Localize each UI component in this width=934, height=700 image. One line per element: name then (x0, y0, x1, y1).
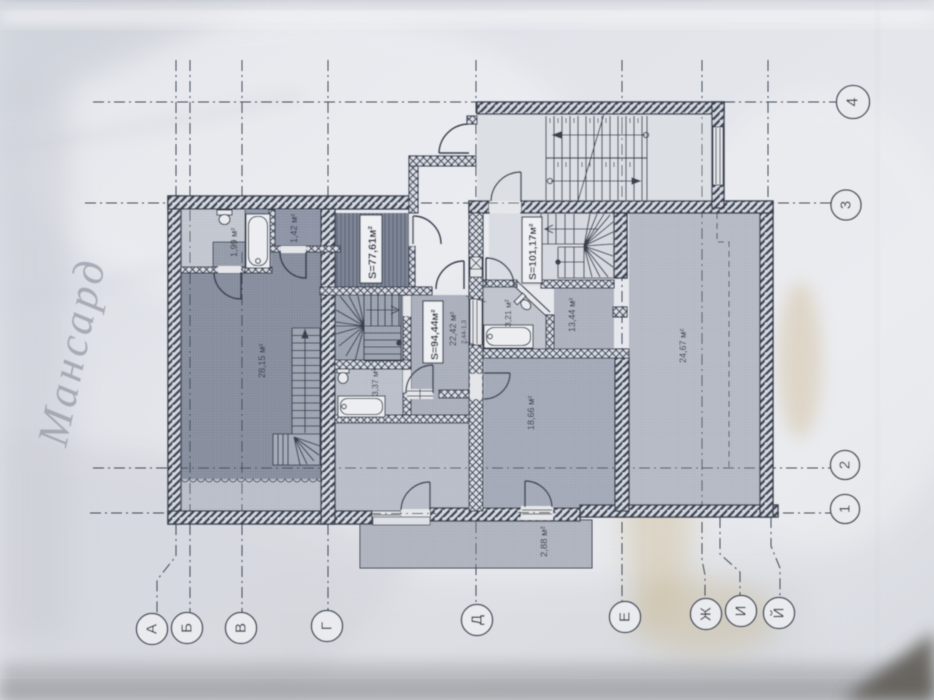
svg-text:24,67 м²: 24,67 м² (678, 329, 688, 363)
svg-text:2: 2 (837, 461, 854, 469)
svg-text:Й: Й (770, 608, 788, 619)
svg-text:2,88 м²: 2,88 м² (539, 526, 550, 557)
svg-text:S=77,61м²: S=77,61м² (367, 226, 379, 279)
svg-text:2,44-1,3: 2,44-1,3 (461, 320, 468, 344)
svg-text:S=94,44м²: S=94,44м² (429, 309, 441, 360)
svg-text:4: 4 (845, 97, 862, 106)
svg-text:28,15 м²: 28,15 м² (257, 344, 267, 378)
svg-text:Д: Д (469, 615, 486, 625)
svg-text:Б: Б (179, 623, 196, 633)
svg-text:3,37 м²: 3,37 м² (370, 368, 380, 396)
svg-text:3: 3 (838, 201, 855, 209)
svg-text:А: А (144, 624, 161, 634)
svg-text:18,66 м²: 18,66 м² (526, 396, 536, 430)
svg-text:1,99 м²: 1,99 м² (229, 228, 239, 257)
svg-text:Г: Г (319, 622, 336, 630)
svg-text:И: И (733, 606, 750, 617)
svg-text:Е: Е (617, 612, 634, 622)
svg-text:1: 1 (837, 505, 854, 513)
svg-text:Ж: Ж (698, 607, 715, 621)
svg-text:3,21 м²: 3,21 м² (503, 299, 513, 327)
svg-text:1,42 м²: 1,42 м² (289, 214, 299, 243)
svg-text:22,42 м²: 22,42 м² (448, 312, 458, 346)
svg-text:S=101,17м²: S=101,17м² (527, 223, 539, 280)
svg-text:13,44 м²: 13,44 м² (567, 298, 577, 332)
svg-text:В: В (233, 623, 250, 633)
